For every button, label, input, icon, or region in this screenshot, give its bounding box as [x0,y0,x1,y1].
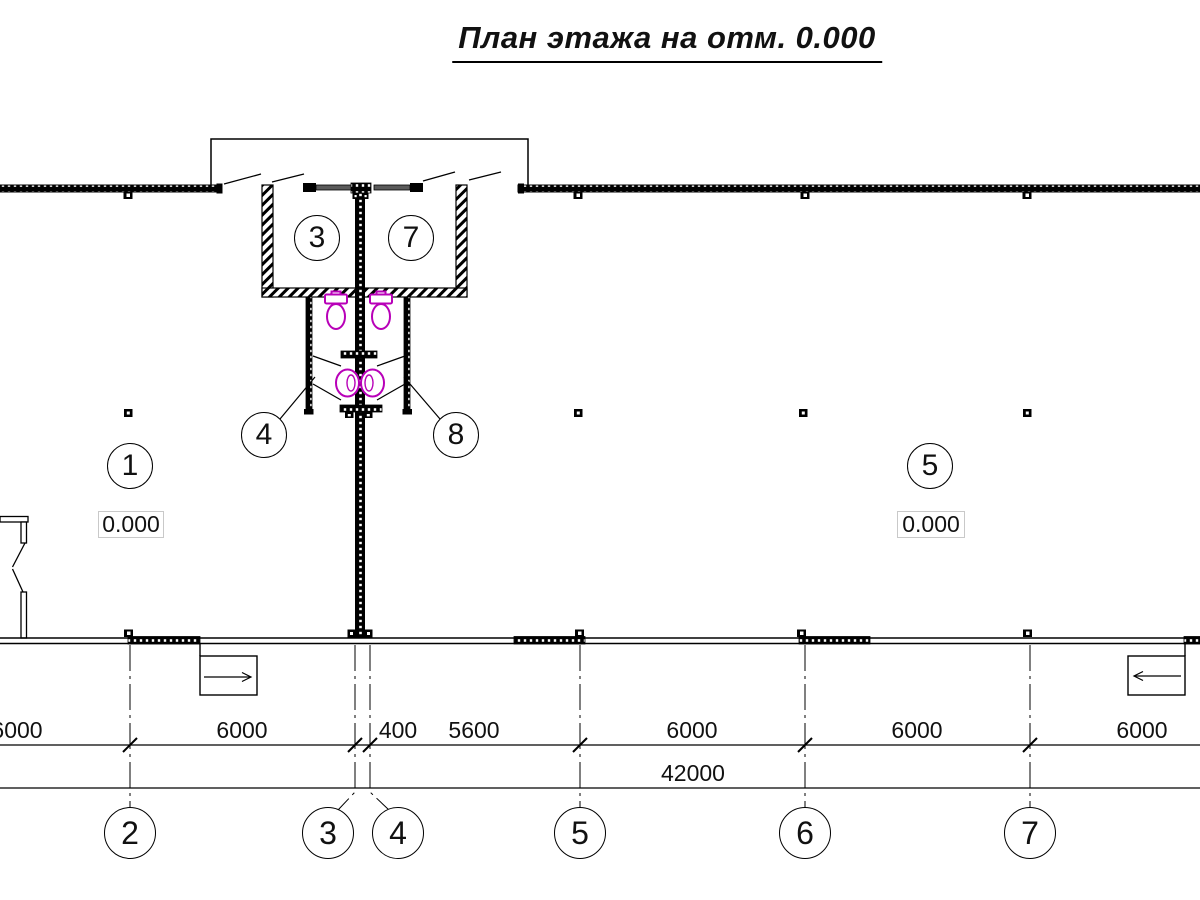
page-title: План этажа на отм. 0.000 [452,20,882,63]
entrance-arrow-right [204,673,251,682]
dim-label-total: 42000 [661,761,725,785]
entrance-ramp-left [200,644,257,695]
dim-label: 6000 [666,718,717,742]
floor-plan-sheet: План этажа на отм. 0.000 1 3 7 4 8 5 0.0… [0,0,1200,900]
axis-bubble-5: 5 [554,807,606,859]
axis-bubble-2: 2 [104,807,156,859]
room-number: 3 [309,223,326,253]
axis-number: 5 [571,817,589,849]
room-bubble-1: 1 [107,443,153,489]
room-bubble-8: 8 [433,412,479,458]
room-number: 1 [122,451,139,481]
dim-label: 400 [379,718,417,742]
column-pilasters-top [124,192,1032,200]
room-number: 5 [922,451,939,481]
door-swings-top [224,172,501,184]
axis-number: 2 [121,817,139,849]
vestibule-outline [211,139,528,185]
toilet-icon [325,292,347,330]
room-bubble-4: 4 [241,412,287,458]
axis-number: 6 [796,817,814,849]
axis-bubble-7: 7 [1004,807,1056,859]
dim-label: 6000 [1116,718,1167,742]
top-exterior-wall [0,184,1200,200]
sink-icon [336,370,359,397]
axis-number: 4 [389,817,407,849]
dimension-lines [0,738,1200,788]
room-bubble-5: 5 [907,443,953,489]
dim-label: 5600 [448,718,499,742]
column-pilasters-bottom [124,630,1032,638]
dim-label: 6000 [891,718,942,742]
axis-bubble-4: 4 [372,807,424,859]
room-bubble-7: 7 [388,215,434,261]
room-number: 4 [256,420,273,450]
elevation-value: 0.000 [902,511,960,538]
entrance-ramp-right [1128,644,1185,695]
elevation-mark: 0.000 [98,511,164,538]
bottom-exterior-wall [0,630,1200,645]
axis-number: 7 [1021,817,1039,849]
toilet-icon [370,292,392,330]
room-bubble-3: 3 [294,215,340,261]
floor-plan-drawing [0,0,1200,900]
window-strip [303,183,423,199]
left-wall-and-door [0,517,28,639]
room-number: 7 [403,223,420,253]
dim-label: 6000 [0,718,43,742]
dim-label: 6000 [216,718,267,742]
elevation-value: 0.000 [102,511,160,538]
sink-icon [361,370,384,397]
entrance-arrow-left [1134,672,1181,681]
axis-bubble-6: 6 [779,807,831,859]
axis-bubble-3: 3 [302,807,354,859]
elevation-mark: 0.000 [897,511,965,538]
room-number: 8 [448,420,465,450]
axis-number: 3 [319,817,337,849]
